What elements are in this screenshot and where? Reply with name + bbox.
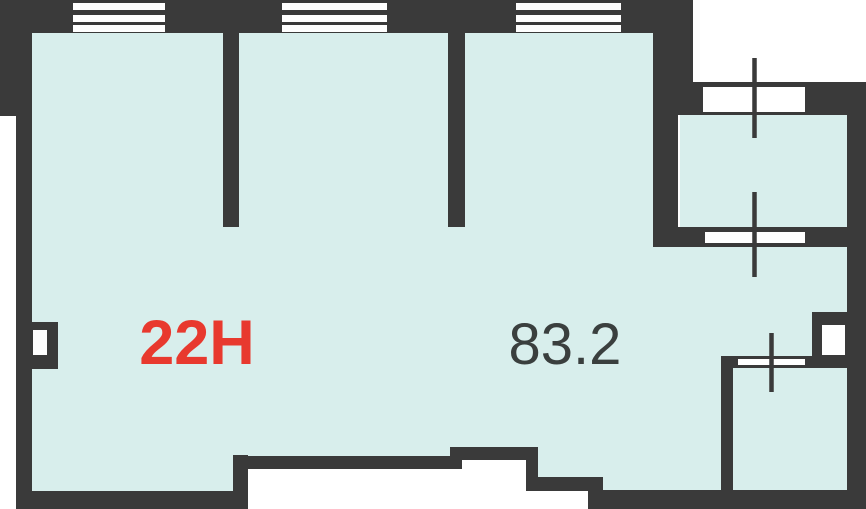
window-1-bar [73, 25, 165, 32]
recess-wall-b [450, 447, 538, 460]
window-2-bar [282, 15, 387, 22]
partition-2 [448, 33, 465, 227]
recess-wall-a [233, 456, 462, 469]
window-1-bar [73, 3, 165, 10]
window-2-bar [282, 25, 387, 32]
window-2-hatch [282, 3, 387, 32]
window-2-bar [282, 3, 387, 10]
bottom-wall-left [16, 491, 248, 509]
window-1-bar [73, 15, 165, 22]
right-wall [847, 82, 866, 509]
core-wall-narrow [653, 112, 678, 247]
window-3-bar [516, 3, 621, 10]
window-3-bar [516, 15, 621, 22]
recess-connector [526, 447, 538, 481]
left-wall-upper [0, 0, 32, 116]
corner-room-left-wall [721, 357, 733, 500]
recess-wall-c [526, 477, 603, 491]
area-label: 83.2 [509, 312, 622, 377]
window-3-bar [516, 25, 621, 32]
left-shaft-opening [33, 330, 47, 355]
floor-plan: 22H 83.2 [0, 0, 866, 509]
window-3-hatch [516, 3, 621, 32]
right-shaft-opening [822, 325, 845, 355]
floor-plan-svg: 22H 83.2 [0, 0, 866, 509]
annex-room-interior [680, 115, 847, 227]
partition-1 [223, 33, 239, 227]
unit-label: 22H [139, 308, 255, 378]
window-1-hatch [73, 3, 165, 32]
left-wall-lower [16, 116, 32, 509]
